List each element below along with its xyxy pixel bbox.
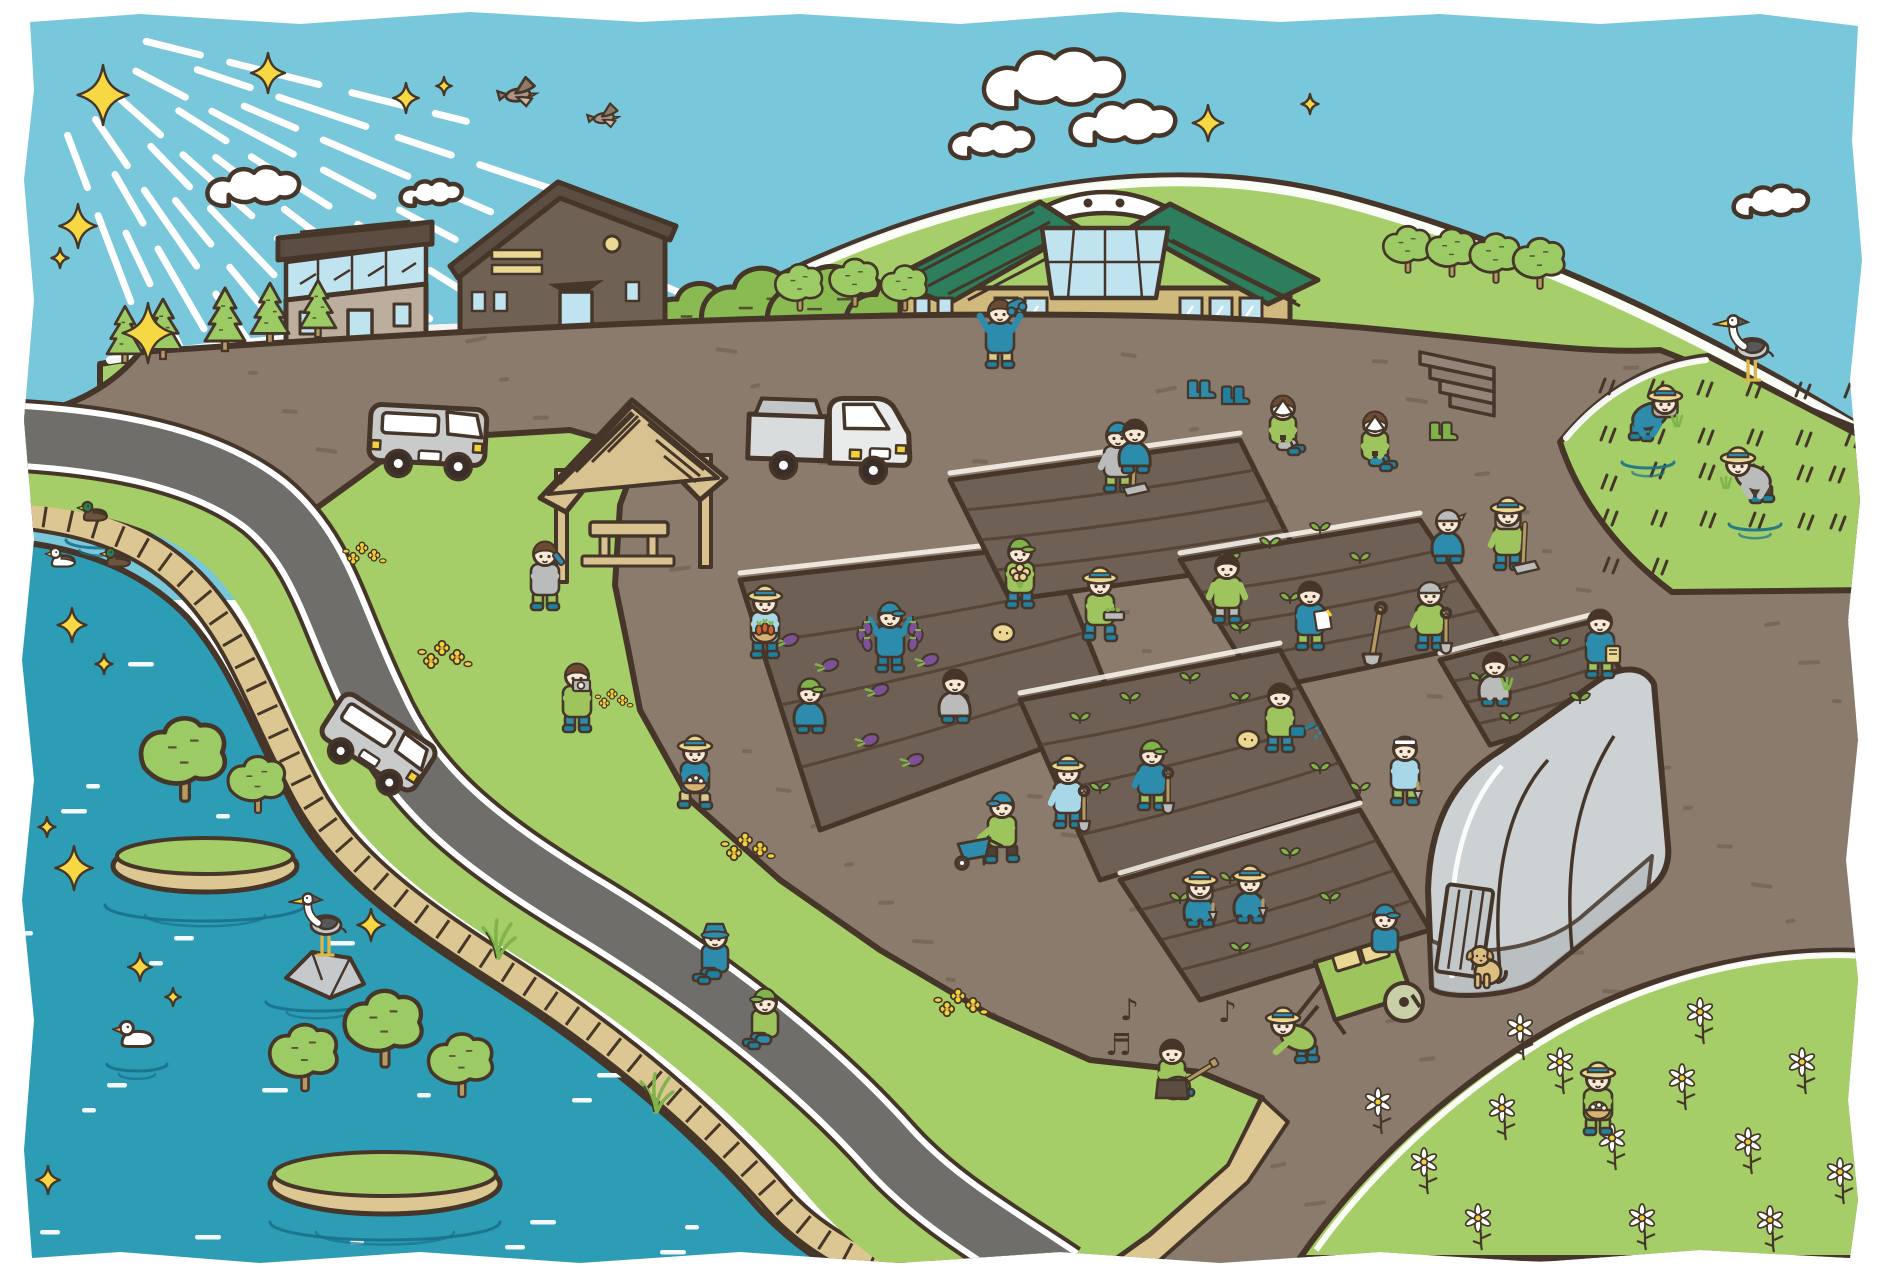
headband-boy bbox=[1391, 737, 1422, 806]
illustration-stage: ♪♬♪ bbox=[0, 0, 1881, 1278]
crouching-kid-2 bbox=[1119, 420, 1150, 474]
rice-seedlings-icon bbox=[1721, 477, 1731, 488]
cart-rider bbox=[1372, 905, 1400, 953]
picking-person bbox=[939, 670, 970, 724]
music-note: ♪ bbox=[1218, 995, 1237, 1030]
seedling-man bbox=[1479, 653, 1512, 707]
rice-seedlings-icon bbox=[1672, 415, 1682, 426]
rice-seedlings-icon bbox=[1502, 678, 1512, 689]
music-note: ♪ bbox=[1120, 993, 1139, 1028]
potato bbox=[992, 624, 1014, 642]
music-note: ♬ bbox=[1105, 1028, 1132, 1063]
farm-scene: ♪♬♪ bbox=[0, 0, 1881, 1278]
potato bbox=[1237, 731, 1259, 749]
planting-grandma bbox=[1183, 870, 1217, 928]
picking-kid bbox=[794, 679, 825, 734]
shovel-straw-woman bbox=[1051, 756, 1090, 832]
